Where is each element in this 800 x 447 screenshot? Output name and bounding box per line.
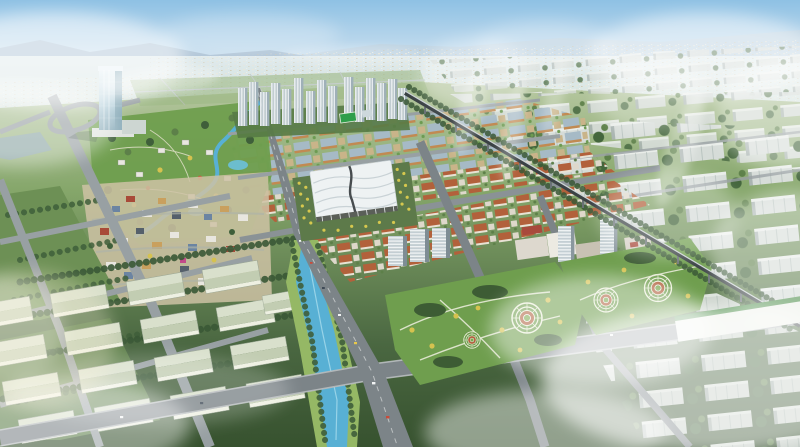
podium-block	[362, 109, 373, 117]
podium-annex	[122, 120, 146, 134]
sports-field	[340, 112, 357, 123]
aerial-rendering-stage	[0, 0, 800, 447]
aerial-rendering	[0, 0, 800, 447]
